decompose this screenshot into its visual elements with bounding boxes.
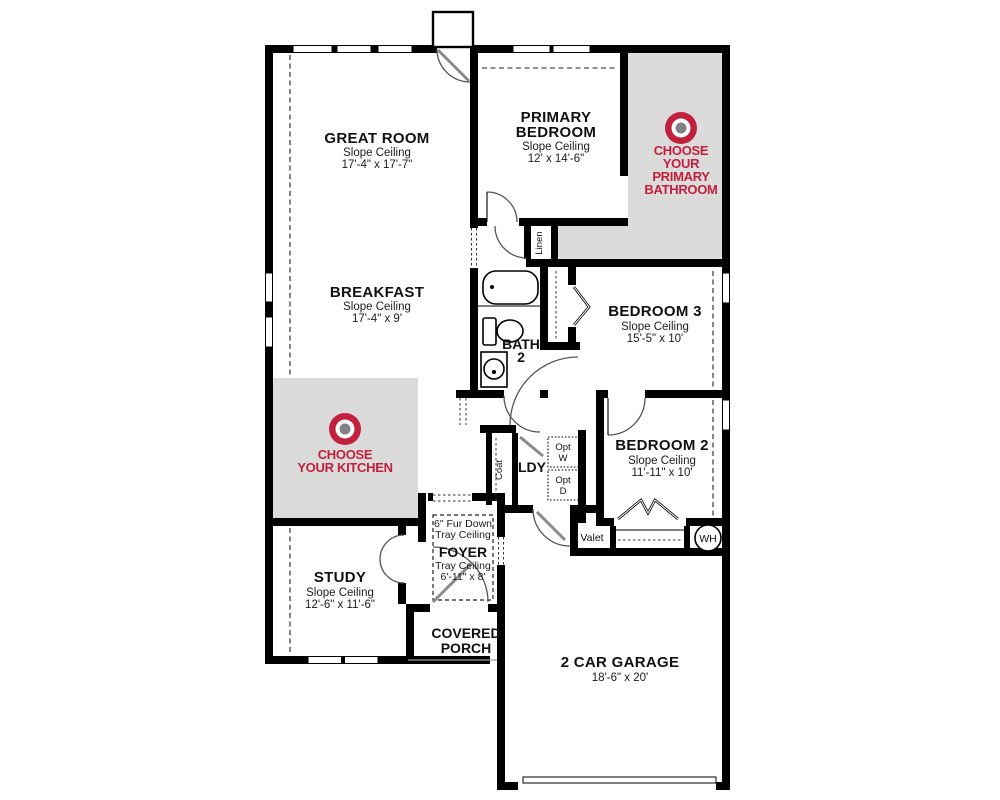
- study-ceiling: Slope Ceiling: [306, 587, 374, 599]
- opt-dryer-line2: D: [560, 486, 567, 497]
- floor-plan-page: WH Opt W Opt D GREAT ROOM Slope Ceiling …: [0, 0, 1000, 800]
- optional-dryer-box: Opt D: [548, 470, 579, 500]
- bedroom3-name: BEDROOM 3: [608, 303, 702, 320]
- bedroom2-name: BEDROOM 2: [615, 437, 709, 454]
- bedroom3-ceiling: Slope Ceiling: [621, 321, 689, 333]
- sink-bowl: [484, 359, 504, 379]
- toilet-tank: [483, 318, 496, 345]
- primary-bedroom-dims: 12' x 14'-6": [528, 153, 584, 165]
- primary-bedroom-ceiling: Slope Ceiling: [522, 141, 590, 153]
- opt-washer-line2: W: [559, 453, 568, 464]
- bedroom2-closet-bifold-door: [618, 500, 678, 519]
- opt-dryer-line1: Opt: [555, 475, 571, 486]
- bedroom2-ceiling: Slope Ceiling: [628, 455, 696, 467]
- bedroom3-closet-bifold-door: [574, 287, 589, 325]
- garage-name: 2 CAR GARAGE: [561, 654, 680, 671]
- garage-dims: 18'-6" x 20': [592, 672, 648, 684]
- bedroom2-dims: 11'-11" x 10': [631, 467, 692, 479]
- kitchen-target-icon: [329, 413, 361, 445]
- water-heater-label: WH: [699, 533, 717, 545]
- breakfast-ceiling: Slope Ceiling: [343, 301, 411, 313]
- covered-porch-name-2: PORCH: [441, 640, 492, 656]
- great-room-name: GREAT ROOM: [324, 130, 429, 147]
- kitchen-badge-line2: YOUR KITCHEN: [297, 460, 392, 475]
- bath2-fixtures: [478, 271, 540, 387]
- breakfast-dims: 17'-4" x 9': [352, 313, 402, 325]
- foyer-dims: 6'-11" x 8': [441, 571, 486, 583]
- primary-bathroom-badge-line4: BATHROOM: [644, 182, 717, 197]
- water-heater: WH: [695, 525, 721, 551]
- primary-bedroom-name-2: BEDROOM: [516, 124, 596, 141]
- great-room-dims: 17'-4" x 17'-7": [342, 159, 413, 171]
- bath2-name-2: 2: [517, 349, 525, 365]
- study-name: STUDY: [314, 569, 366, 586]
- entry-alcove: [433, 12, 473, 47]
- primary-bathroom-target-icon: [665, 112, 697, 144]
- foyer-name: FOYER: [439, 544, 487, 560]
- optional-washer-box: Opt W: [548, 437, 579, 467]
- laundry-label: LDY: [518, 459, 547, 475]
- opt-washer-line1: Opt: [555, 442, 571, 453]
- linen-closet-label: Linen: [534, 231, 545, 254]
- foyer-note-2: Tray Ceiling: [435, 529, 491, 541]
- coat-closet-label: Coat: [494, 460, 505, 480]
- breakfast-name: BREAKFAST: [330, 284, 424, 301]
- floor-plan-canvas: WH Opt W Opt D GREAT ROOM Slope Ceiling …: [0, 0, 1000, 800]
- bedroom3-dims: 15'-5" x 10': [627, 333, 683, 345]
- valet-label: Valet: [580, 532, 603, 544]
- covered-porch-name-1: COVERED: [431, 625, 500, 641]
- great-room-ceiling: Slope Ceiling: [343, 147, 411, 159]
- study-dims: 12'-6" x 11'-6": [305, 599, 375, 611]
